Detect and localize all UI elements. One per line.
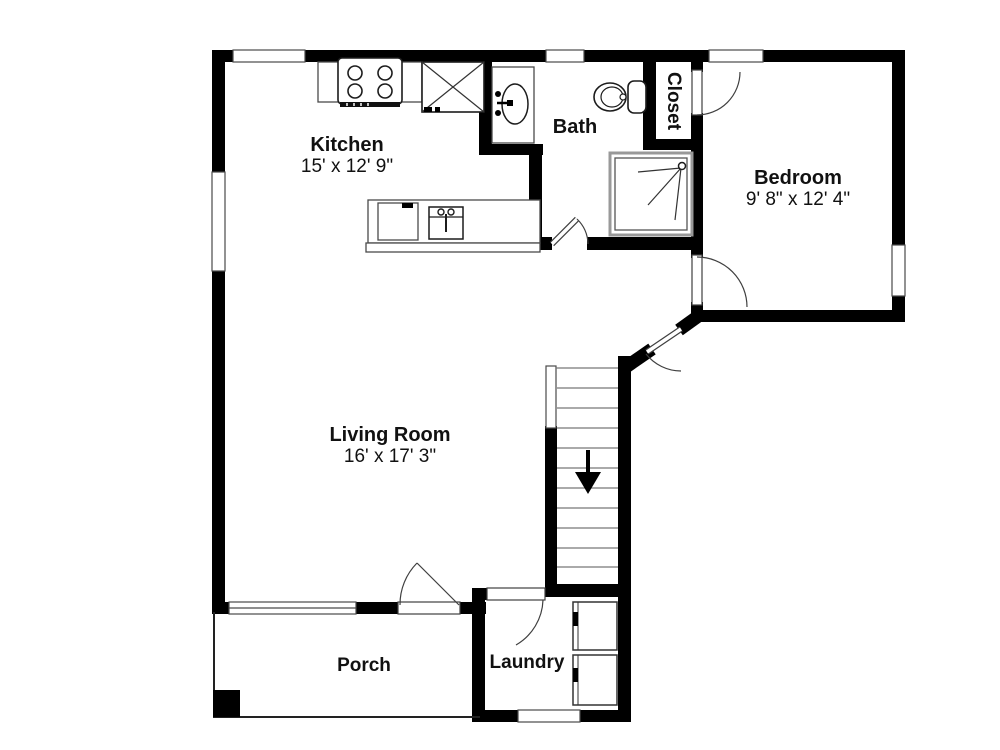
- stove-icon: [338, 58, 402, 107]
- floor-plan: Kitchen 15' x 12' 9" Bath Closet Bedroom…: [0, 0, 1000, 750]
- bath-window: [546, 50, 584, 62]
- bedroom-dims: 9' 8" x 12' 4": [698, 189, 898, 210]
- bath-label: Bath: [525, 116, 625, 138]
- porch-label: Porch: [264, 655, 464, 676]
- bedroom-top-window: [709, 50, 763, 62]
- bedroom-label: Bedroom 9' 8" x 12' 4": [698, 167, 898, 211]
- refrigerator-icon: [422, 62, 484, 112]
- shower-icon: [610, 153, 692, 235]
- bath-door: [552, 219, 588, 244]
- laundry-label: Laundry: [457, 652, 597, 673]
- laundry-window: [518, 710, 580, 722]
- porch-post: [213, 690, 240, 717]
- washer-icon: [573, 602, 617, 650]
- laundry-name: Laundry: [457, 652, 597, 673]
- entry-door: [398, 563, 460, 614]
- bedroom-side-window: [892, 245, 905, 296]
- living-room-dims: 16' x 17' 3": [290, 446, 490, 467]
- kitchen-side-window: [212, 172, 225, 271]
- kitchen-island: [366, 200, 540, 252]
- kitchen-window: [233, 50, 305, 62]
- closet-label: Closet: [662, 41, 684, 161]
- hall-door: [646, 329, 681, 371]
- living-room-label: Living Room 16' x 17' 3": [290, 424, 490, 468]
- closet-name: Closet: [663, 41, 684, 161]
- bedroom-name: Bedroom: [698, 167, 898, 189]
- kitchen-dims: 15' x 12' 9": [247, 156, 447, 177]
- bath-name: Bath: [525, 116, 625, 138]
- kitchen-name: Kitchen: [247, 134, 447, 156]
- closet-door: [692, 70, 740, 115]
- living-room-name: Living Room: [290, 424, 490, 446]
- island-sink-icon: [429, 207, 463, 239]
- floor-plan-drawing: [0, 0, 1000, 750]
- porch-name: Porch: [264, 655, 464, 676]
- stair-railing: [546, 366, 556, 428]
- toilet-icon: [594, 81, 646, 113]
- laundry-door: [487, 588, 545, 645]
- dishwasher-icon: [378, 203, 418, 240]
- bedroom-door: [692, 255, 747, 307]
- kitchen-label: Kitchen 15' x 12' 9": [247, 134, 447, 178]
